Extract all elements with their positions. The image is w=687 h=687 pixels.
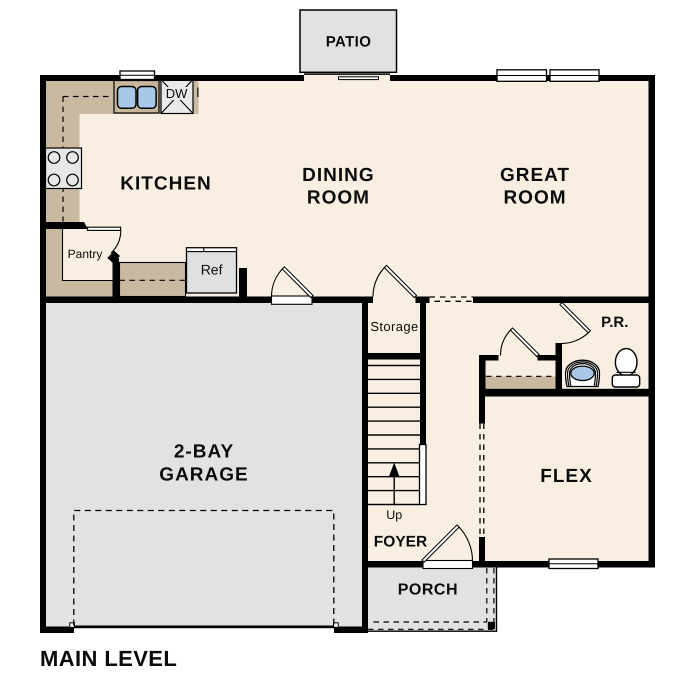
svg-text:2-BAY: 2-BAY [174,441,234,462]
svg-text:Up: Up [386,508,402,522]
svg-text:ROOM: ROOM [503,188,566,209]
svg-text:DINING: DINING [302,165,375,186]
svg-text:PATIO: PATIO [326,34,372,51]
svg-text:GREAT: GREAT [500,165,570,186]
svg-text:MAIN LEVEL: MAIN LEVEL [40,646,177,671]
svg-text:ROOM: ROOM [307,188,370,209]
svg-text:PORCH: PORCH [398,581,458,598]
svg-text:Pantry: Pantry [68,247,103,261]
svg-text:GARAGE: GARAGE [159,465,248,486]
svg-text:Storage: Storage [370,319,418,334]
svg-text:DW: DW [166,86,188,101]
svg-text:KITCHEN: KITCHEN [120,174,211,195]
svg-text:FLEX: FLEX [540,466,593,487]
svg-text:Ref: Ref [201,262,223,278]
svg-text:P.R.: P.R. [601,314,628,331]
svg-text:FOYER: FOYER [374,534,427,551]
